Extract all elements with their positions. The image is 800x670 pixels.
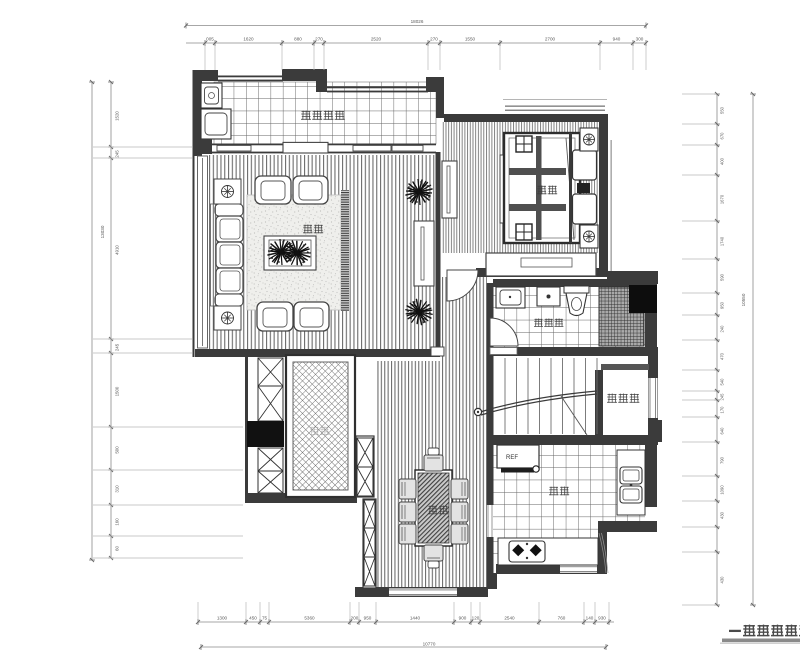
svg-text:170: 170 xyxy=(720,406,725,414)
svg-text:450: 450 xyxy=(249,616,257,621)
svg-text:1500: 1500 xyxy=(115,386,120,396)
svg-text:640: 640 xyxy=(720,427,725,435)
svg-text:245: 245 xyxy=(115,150,120,158)
svg-text:1550: 1550 xyxy=(465,37,476,42)
svg-text:245: 245 xyxy=(720,393,725,401)
svg-text:1670: 1670 xyxy=(720,194,725,204)
svg-text:160: 160 xyxy=(115,518,120,526)
svg-text:120: 120 xyxy=(472,616,480,621)
svg-text:550: 550 xyxy=(720,106,725,114)
svg-text:4910: 4910 xyxy=(115,245,120,255)
svg-text:790: 790 xyxy=(720,456,725,464)
svg-text:200: 200 xyxy=(351,616,359,621)
svg-text:670: 670 xyxy=(720,132,725,140)
svg-text:60: 60 xyxy=(115,546,120,551)
svg-text:140: 140 xyxy=(586,616,594,621)
svg-text:400: 400 xyxy=(720,157,725,165)
svg-text:2700: 2700 xyxy=(545,37,556,42)
svg-text:5360: 5360 xyxy=(304,616,315,621)
svg-text:1090: 1090 xyxy=(720,485,725,495)
svg-text:500: 500 xyxy=(115,446,120,454)
svg-text:005: 005 xyxy=(206,37,214,42)
svg-text:270: 270 xyxy=(430,37,438,42)
svg-text:470: 470 xyxy=(720,352,725,360)
svg-text:590: 590 xyxy=(720,273,725,281)
svg-text:245: 245 xyxy=(115,343,120,351)
svg-text:1440: 1440 xyxy=(410,616,421,621)
svg-text:300: 300 xyxy=(636,37,644,42)
svg-text:1740: 1740 xyxy=(720,236,725,246)
svg-text:2520: 2520 xyxy=(371,37,382,42)
svg-text:75: 75 xyxy=(262,616,268,621)
svg-text:950: 950 xyxy=(720,301,725,309)
svg-text:540: 540 xyxy=(720,378,725,386)
svg-text:1620: 1620 xyxy=(243,37,254,42)
svg-text:940: 940 xyxy=(613,37,621,42)
svg-text:1300: 1300 xyxy=(217,616,228,621)
svg-text:240: 240 xyxy=(720,325,725,333)
svg-text:430: 430 xyxy=(720,576,725,584)
svg-text:310: 310 xyxy=(115,485,120,493)
svg-text:430: 430 xyxy=(720,511,725,519)
svg-text:10550: 10550 xyxy=(741,293,746,306)
svg-text:880: 880 xyxy=(294,37,302,42)
svg-text:950: 950 xyxy=(364,616,372,621)
svg-text:900: 900 xyxy=(459,616,467,621)
svg-text:930: 930 xyxy=(598,616,606,621)
svg-text:2540: 2540 xyxy=(504,616,515,621)
svg-text:REF: REF xyxy=(506,455,518,461)
svg-text:10770: 10770 xyxy=(423,642,436,647)
svg-text:18026: 18026 xyxy=(411,19,424,24)
svg-text:1520: 1520 xyxy=(115,111,120,121)
svg-text:760: 760 xyxy=(558,616,566,621)
svg-text:270: 270 xyxy=(315,37,323,42)
svg-text:13030: 13030 xyxy=(100,225,105,238)
